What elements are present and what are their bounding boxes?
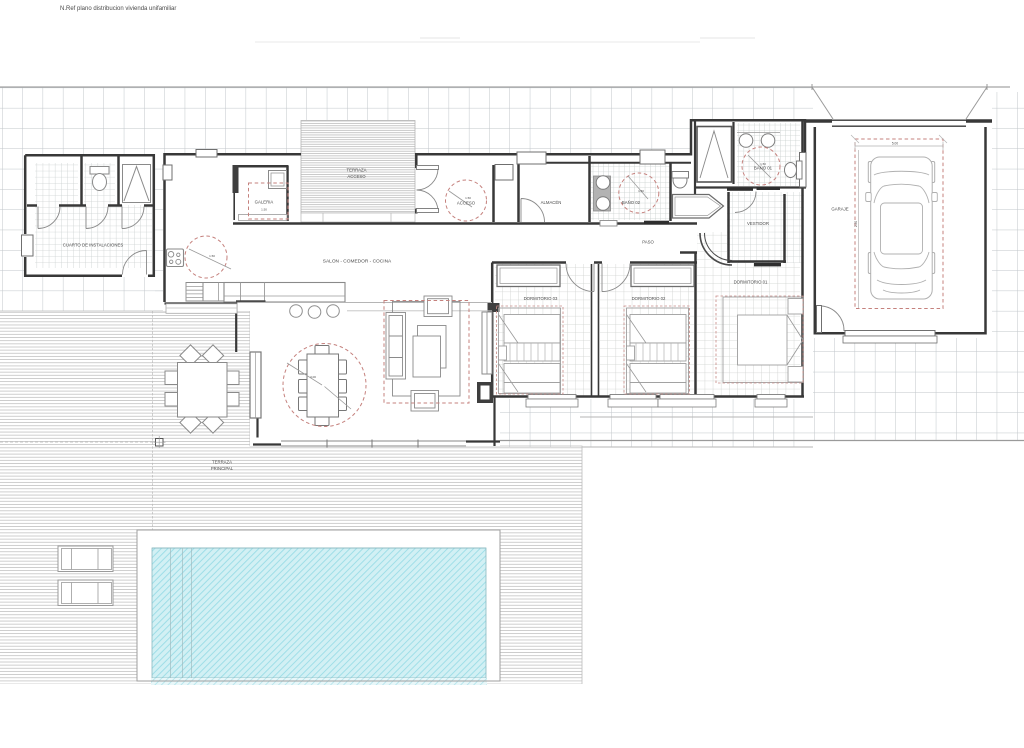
svg-text:PRINCIPAL: PRINCIPAL	[211, 466, 234, 471]
svg-text:DORMITORIO 03: DORMITORIO 03	[524, 296, 558, 301]
svg-text:GALERIA: GALERIA	[255, 200, 274, 205]
svg-text:1.50: 1.50	[465, 196, 471, 200]
svg-text:GARAJE: GARAJE	[831, 207, 848, 212]
svg-text:2.50: 2.50	[854, 221, 858, 227]
svg-text:VESTIDOR: VESTIDOR	[747, 221, 769, 226]
svg-text:1.50: 1.50	[209, 254, 215, 258]
svg-text:1.50: 1.50	[261, 208, 267, 212]
svg-text:PASO: PASO	[642, 240, 654, 245]
svg-text:3.00: 3.00	[310, 375, 316, 379]
svg-text:DORMITORIO 02: DORMITORIO 02	[632, 296, 666, 301]
svg-text:ALMACÉN: ALMACÉN	[541, 200, 562, 205]
svg-text:N.Ref plano distribucion vivie: N.Ref plano distribucion vivienda unifam…	[60, 6, 176, 12]
svg-text:TERRAZA: TERRAZA	[212, 460, 232, 465]
svg-text:CUARTO DE INSTALACIONES: CUARTO DE INSTALACIONES	[63, 243, 124, 248]
svg-text:TERRAZA: TERRAZA	[346, 168, 366, 173]
svg-text:5.00: 5.00	[892, 142, 898, 146]
svg-text:BAÑO 01: BAÑO 01	[754, 166, 773, 171]
svg-text:SALON - COMEDOR - COCINA: SALON - COMEDOR - COCINA	[323, 259, 392, 265]
svg-text:1.50: 1.50	[760, 162, 766, 166]
svg-text:DORMITORIO 01: DORMITORIO 01	[734, 280, 768, 285]
svg-text:ACCESO: ACCESO	[347, 174, 366, 179]
svg-text:ACCESO: ACCESO	[457, 201, 476, 206]
svg-text:1.50: 1.50	[638, 189, 644, 193]
svg-text:BAÑO 02: BAÑO 02	[622, 200, 641, 205]
